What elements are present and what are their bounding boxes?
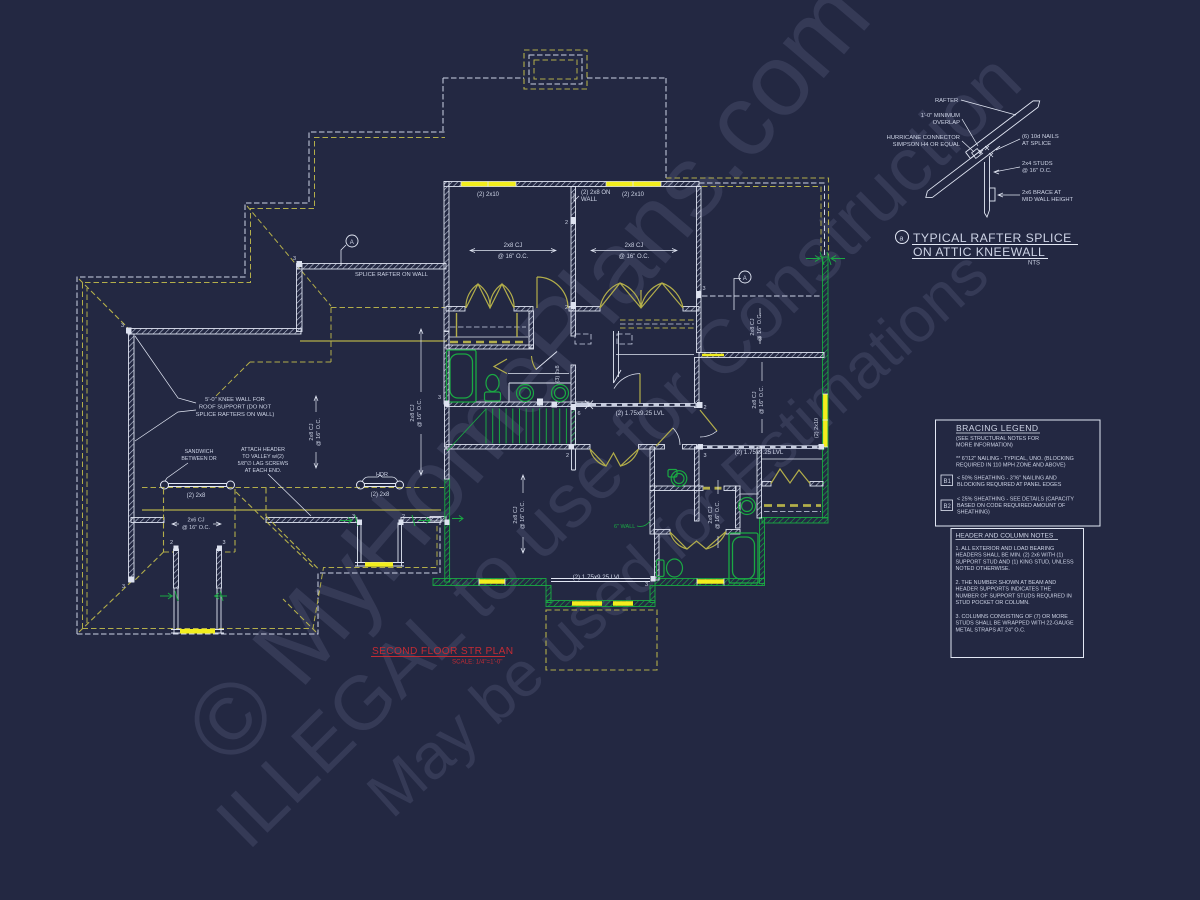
svg-text:@ 16" O.C.: @ 16" O.C. <box>619 254 650 260</box>
svg-text:1. ALL EXTERIOR AND LOAD BEARI: 1. ALL EXTERIOR AND LOAD BEARING <box>956 546 1055 552</box>
svg-text:2x8 CJ: 2x8 CJ <box>750 318 756 335</box>
svg-text:(2) 2x10: (2) 2x10 <box>622 192 645 198</box>
svg-text:2. THE NUMBER SHOWN AT BEAM AN: 2. THE NUMBER SHOWN AT BEAM AND <box>956 580 1057 586</box>
svg-text:2x8 CJ: 2x8 CJ <box>708 506 714 523</box>
svg-text:2x6 BRACE AT: 2x6 BRACE AT <box>1022 190 1062 196</box>
svg-text:SUPPORT STUD AND (1) KING STUD: SUPPORT STUD AND (1) KING STUD, UNLESS <box>956 559 1075 565</box>
svg-text:SPLICE RAFTER ON WALL: SPLICE RAFTER ON WALL <box>355 272 429 278</box>
svg-text:6: 6 <box>578 411 581 417</box>
svg-text:2x8 CJ: 2x8 CJ <box>410 404 416 421</box>
svg-text:TO VALLEY w/(2): TO VALLEY w/(2) <box>242 454 284 460</box>
svg-text:BRACING LEGEND: BRACING LEGEND <box>956 423 1038 433</box>
svg-text:@ 16" O.C.: @ 16" O.C. <box>417 399 423 427</box>
svg-text:OVERLAP: OVERLAP <box>933 120 961 126</box>
svg-text:B1: B1 <box>944 479 952 485</box>
svg-text:METAL STRAPS AT 24" O.C.: METAL STRAPS AT 24" O.C. <box>956 627 1026 633</box>
svg-text:RAFTER: RAFTER <box>935 98 958 104</box>
svg-text:2: 2 <box>402 514 405 520</box>
svg-text:@ 16" O.C.: @ 16" O.C. <box>316 418 322 446</box>
svg-text:3: 3 <box>223 540 226 546</box>
svg-text:@ 16" O.C.: @ 16" O.C. <box>182 525 210 531</box>
svg-text:ATTACH HEADER: ATTACH HEADER <box>241 447 285 453</box>
svg-text:3: 3 <box>122 584 125 590</box>
svg-text:MORE INFORMATION): MORE INFORMATION) <box>956 443 1013 449</box>
svg-text:HEADER AND COLUMN NOTES: HEADER AND COLUMN NOTES <box>956 533 1054 540</box>
svg-text:(2) 2x8: (2) 2x8 <box>187 493 206 499</box>
svg-text:SCALE: 1/4"=1'-0": SCALE: 1/4"=1'-0" <box>452 659 502 666</box>
svg-text:(SEE STRUCTURAL NOTES FOR: (SEE STRUCTURAL NOTES FOR <box>956 436 1039 442</box>
svg-text:HEADERS SHALL BE MIN. (2) 2x6: HEADERS SHALL BE MIN. (2) 2x6 WITH (1) <box>956 553 1064 559</box>
svg-text:2x8 CJ: 2x8 CJ <box>309 423 315 440</box>
svg-text:ROOF SUPPORT (DO NOT: ROOF SUPPORT (DO NOT <box>199 405 272 411</box>
svg-text:HDR: HDR <box>376 472 388 478</box>
svg-text:B2: B2 <box>944 504 952 510</box>
svg-text:AT EACH END.: AT EACH END. <box>245 468 282 474</box>
svg-text:3: 3 <box>703 286 706 292</box>
svg-text:@ 16" O.C.: @ 16" O.C. <box>1022 168 1052 174</box>
svg-text:5/8"∅ LAG SCREWS: 5/8"∅ LAG SCREWS <box>238 461 289 467</box>
svg-text:@ 16" O.C.: @ 16" O.C. <box>759 386 765 414</box>
svg-text:(2) 2x10: (2) 2x10 <box>814 418 820 438</box>
svg-text:(2) 2x10: (2) 2x10 <box>477 192 500 198</box>
svg-text:(3) 2x8: (3) 2x8 <box>555 365 561 382</box>
svg-text:SIMPSON H4 OR EQUAL: SIMPSON H4 OR EQUAL <box>893 142 961 148</box>
svg-text:** 6"/12" NAILING - TYPICAL, U: ** 6"/12" NAILING - TYPICAL, UNO. (BLOCK… <box>956 456 1074 462</box>
svg-text:STUD POCKET OR COLUMN.: STUD POCKET OR COLUMN. <box>956 600 1030 606</box>
svg-text:(2) 1.75x9.25 LVL: (2) 1.75x9.25 LVL <box>735 449 784 456</box>
svg-text:a: a <box>900 236 904 243</box>
svg-text:WALL: WALL <box>581 197 598 203</box>
svg-text:@ 16" O.C.: @ 16" O.C. <box>498 254 529 260</box>
svg-text:3: 3 <box>293 256 296 262</box>
svg-text:STUDS SHALL BE WRAPPED WITH 22: STUDS SHALL BE WRAPPED WITH 22-GAUGE <box>956 621 1075 627</box>
svg-text:2x8 CJ: 2x8 CJ <box>752 391 758 408</box>
svg-text:1'-0" MINIMUM: 1'-0" MINIMUM <box>921 113 960 119</box>
svg-text:< 50% SHEATHING - 3"/6" NAILIN: < 50% SHEATHING - 3"/6" NAILING AND <box>957 476 1057 482</box>
svg-text:@ 16" O.C.: @ 16" O.C. <box>715 501 721 529</box>
svg-text:3. COLUMNS CONSISTING OF (7) O: 3. COLUMNS CONSISTING OF (7) OR MORE <box>956 614 1069 620</box>
svg-text:BETWEEN DR: BETWEEN DR <box>181 456 216 462</box>
svg-text:2: 2 <box>170 540 173 546</box>
svg-text:AT SPLICE: AT SPLICE <box>1022 141 1051 147</box>
svg-text:NOTED OTHERWISE.: NOTED OTHERWISE. <box>956 566 1010 572</box>
svg-text:(2) 2x8: (2) 2x8 <box>371 492 390 498</box>
svg-text:HURRICANE CONNECTOR: HURRICANE CONNECTOR <box>887 135 960 141</box>
svg-text:2x8 CJ: 2x8 CJ <box>504 243 523 249</box>
svg-text:@ 16" O.C.: @ 16" O.C. <box>520 501 526 529</box>
svg-text:2x8 CJ: 2x8 CJ <box>625 243 644 249</box>
svg-text:BLOCKING REQUIRED AT PANEL EDG: BLOCKING REQUIRED AT PANEL EDGES <box>957 482 1062 488</box>
svg-text:(2) 1.75x9.25 LVL: (2) 1.75x9.25 LVL <box>616 410 665 417</box>
svg-text:< 25% SHEATHING - SEE DETAILS: < 25% SHEATHING - SEE DETAILS (CAPACITY <box>957 497 1074 503</box>
svg-text:2: 2 <box>704 405 707 411</box>
svg-text:BASED ON CODE REQUIRED AMOUNT: BASED ON CODE REQUIRED AMOUNT OF <box>957 503 1066 509</box>
svg-text:(2) 2x8 ON: (2) 2x8 ON <box>581 190 610 196</box>
svg-text:2x6 CJ: 2x6 CJ <box>187 518 204 524</box>
svg-text:HEADER SUPPORTS INDICATES THE: HEADER SUPPORTS INDICATES THE <box>956 587 1052 593</box>
svg-text:A: A <box>350 240 354 246</box>
svg-text:3: 3 <box>352 514 355 520</box>
svg-text:MID WALL HEIGHT: MID WALL HEIGHT <box>1022 197 1074 203</box>
svg-text:3: 3 <box>645 582 648 588</box>
svg-text:2: 2 <box>565 305 568 311</box>
svg-text:2x4 STUDS: 2x4 STUDS <box>1022 161 1053 167</box>
svg-text:TYPICAL RAFTER SPLICE: TYPICAL RAFTER SPLICE <box>913 231 1072 245</box>
svg-text:2: 2 <box>565 220 568 226</box>
svg-text:ON ATTIC KNEEWALL: ON ATTIC KNEEWALL <box>913 245 1045 259</box>
svg-text:SANDWICH: SANDWICH <box>185 449 214 455</box>
svg-text:3: 3 <box>704 453 707 459</box>
svg-text:NTS: NTS <box>1028 261 1040 267</box>
svg-text:SHEATHING): SHEATHING) <box>957 510 990 516</box>
svg-text:A: A <box>743 276 747 282</box>
svg-text:(2) 1.75x9.25 LVL: (2) 1.75x9.25 LVL <box>573 574 622 581</box>
svg-text:NUMBER OF SUPPORT STUDS REQUIR: NUMBER OF SUPPORT STUDS REQUIRED IN <box>956 593 1072 599</box>
svg-text:2x8 CJ: 2x8 CJ <box>513 506 519 523</box>
svg-text:SPLICE RAFTERS ON WALL): SPLICE RAFTERS ON WALL) <box>196 412 275 418</box>
svg-text:SECOND FLOOR STR PLAN: SECOND FLOOR STR PLAN <box>372 646 514 657</box>
svg-text:3: 3 <box>121 323 124 329</box>
svg-text:3: 3 <box>438 395 441 401</box>
svg-text:2: 2 <box>566 453 569 459</box>
svg-text:5'-0" KNEE WALL FOR: 5'-0" KNEE WALL FOR <box>205 397 265 403</box>
svg-text:REQUIRED IN 110 MPH ZONE AND A: REQUIRED IN 110 MPH ZONE AND ABOVE) <box>956 463 1066 469</box>
svg-text:(6) 10d NAILS: (6) 10d NAILS <box>1022 134 1059 140</box>
svg-text:6" WALL: 6" WALL <box>614 524 635 530</box>
